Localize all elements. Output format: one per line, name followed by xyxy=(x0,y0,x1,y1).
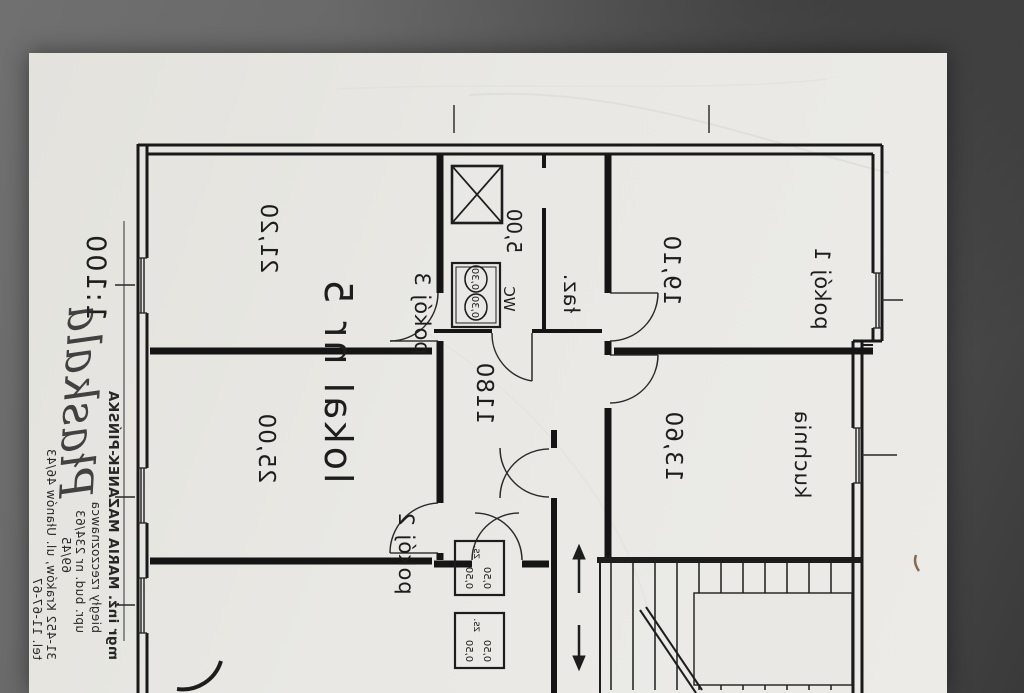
wc-dim-1: 0,30 xyxy=(469,296,480,318)
room-area-pokoj1: 19,10 xyxy=(658,235,684,306)
hall-area: 1180 xyxy=(471,362,497,425)
stair-box2-label: zs. xyxy=(471,618,482,632)
stamp-phone: tel. 11-67-67 xyxy=(30,577,44,660)
room-area-kuchnia: 13,60 xyxy=(660,411,686,482)
stair-box1-label: zs. xyxy=(471,545,482,559)
wc-dim-2: 0,30 xyxy=(469,268,480,290)
room-label-lazienka: łaz. xyxy=(559,273,583,314)
stairs-down-arrow xyxy=(573,625,585,670)
paper-document: lokal nr 5 pokój 3 21,20 pokój 2 25,00 p… xyxy=(29,53,947,693)
vent-shaft-symbol xyxy=(452,166,502,223)
room-label-wc: WC xyxy=(500,286,518,311)
stair-rail xyxy=(640,607,702,693)
room-label-kuchnia: kuchnia xyxy=(790,410,814,499)
room-area-pokoj2: 25,00 xyxy=(253,413,279,484)
stamp-license: upr. bud. nr 234/63 xyxy=(73,510,87,633)
photo-of-floor-plan: lokal nr 5 pokój 3 21,20 pokój 2 25,00 p… xyxy=(0,0,1024,693)
stair-box2-dim1: 0,50 xyxy=(481,640,492,662)
room-area-pokoj3: 21,20 xyxy=(255,203,281,274)
room-label-pokoj2: pokój 2 xyxy=(394,511,418,594)
partial-room-label xyxy=(177,661,221,689)
unit-label: lokal nr 5 xyxy=(316,276,360,483)
stair-well-opening xyxy=(694,593,852,685)
windows xyxy=(138,258,882,633)
stamp-name: mgr inż. MARIA MAZANEK-PIŃSKA xyxy=(105,390,123,660)
stair-box1-dim2: 0,50 xyxy=(463,567,474,589)
staircase xyxy=(573,545,862,693)
stair-box1-dim1: 0,50 xyxy=(481,567,492,589)
stamp-license2: 69/45 xyxy=(59,536,73,573)
handwritten-signature: Płaskala xyxy=(48,303,112,501)
floor-plan-drawing: lokal nr 5 pokój 3 21,20 pokój 2 25,00 p… xyxy=(29,53,947,693)
room-label-pokoj3: pokój 3 xyxy=(410,271,434,354)
stamp-title: biegły rzeczoznawca xyxy=(89,501,103,633)
stairs-up-arrow xyxy=(573,545,585,593)
stair-box2-dim2: 0,50 xyxy=(463,640,474,662)
dirt-speck xyxy=(915,555,919,571)
room-label-pokoj1: pokój 1 xyxy=(810,246,834,329)
room-area-lazienka: 5,00 xyxy=(502,209,526,254)
